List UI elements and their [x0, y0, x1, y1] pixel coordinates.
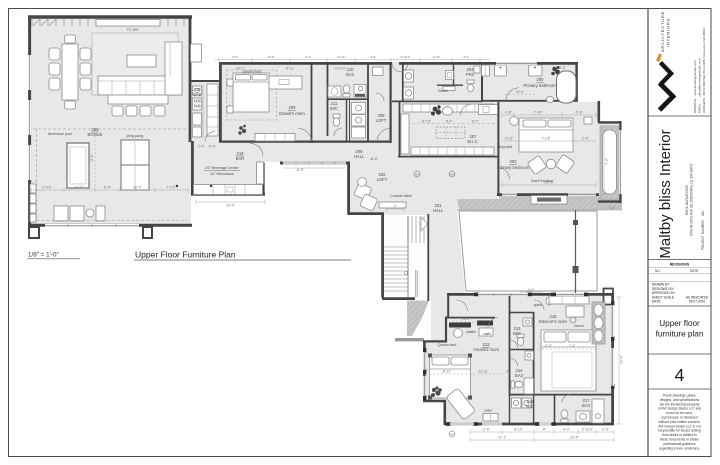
svg-text:Maltby bliss Interior: Maltby bliss Interior — [657, 129, 674, 258]
svg-text:PROJECT NUMBER: 019: PROJECT NUMBER: 019 — [701, 211, 705, 250]
svg-text:-5'-2": -5'-2" — [208, 145, 216, 149]
svg-text:209: 209 — [289, 105, 297, 110]
svg-text:ADDRESS: 400 E Mill Plain Blv: ADDRESS: 400 E Mill Plain Blvd #305, Van… — [702, 27, 706, 113]
svg-text:HALL: HALL — [354, 154, 365, 159]
svg-text:16'-5": 16'-5" — [267, 55, 274, 59]
svg-text:-12'-6": -12'-6" — [544, 181, 554, 185]
svg-text:Queen bed: Queen bed — [438, 343, 457, 347]
svg-text:bench: bench — [574, 324, 583, 328]
svg-text:-5'-0": -5'-0" — [462, 317, 470, 321]
svg-text:-17'-1": -17'-1" — [497, 436, 507, 440]
svg-text:without prior written consent.: without prior written consent. — [659, 420, 701, 424]
svg-text:easel: easel — [484, 409, 492, 413]
svg-text:-8'-0": -8'-0" — [296, 168, 304, 172]
svg-text:7'-2.5": 7'-2.5" — [541, 137, 551, 141]
svg-text:palette: palette — [466, 330, 476, 334]
svg-text:-2': -2' — [505, 370, 509, 374]
svg-text:05.07.2024: 05.07.2024 — [689, 300, 705, 304]
svg-text:DATE:: DATE: — [690, 269, 699, 273]
svg-text:these documents or obtain: these documents or obtain — [660, 438, 699, 442]
svg-text:-6'-10.5": -6'-10.5" — [400, 55, 410, 59]
svg-text:BA4: BA4 — [582, 403, 591, 408]
svg-text:NO.: NO. — [655, 269, 661, 273]
svg-text:These drawings, plans,: These drawings, plans, — [663, 394, 697, 398]
svg-text:regarding errors, omissions,: regarding errors, omissions, — [659, 446, 700, 450]
svg-text:-10'-0.5": -10'-0.5" — [334, 67, 347, 71]
svg-text:-1'-8": -1'-8" — [504, 111, 512, 115]
svg-text:Amara's room: Amara's room — [473, 347, 499, 352]
svg-text:of AVI Design Studio LLC and: of AVI Design Studio LLC and — [658, 407, 702, 411]
svg-text:-2'-10.5": -2'-10.5" — [581, 428, 594, 432]
svg-text:A/1: A/1 — [450, 432, 454, 436]
svg-text:4: 4 — [675, 365, 685, 385]
svg-text:24" Beverage Center: 24" Beverage Center — [205, 166, 239, 170]
svg-text:5'-4.5": 5'-4.5" — [42, 186, 52, 190]
svg-text:Queen bed: Queen bed — [243, 70, 262, 74]
svg-text:4': 4' — [394, 205, 397, 209]
svg-text:LOFT: LOFT — [376, 118, 387, 123]
svg-text:Console table: Console table — [390, 194, 412, 198]
svg-text:-3': -3' — [573, 287, 577, 291]
svg-text:7'-6": 7'-6" — [609, 206, 616, 210]
svg-text:-8'-0": -8'-0" — [232, 55, 239, 59]
svg-text:WEBSITE: www.levdesignstudio: WEBSITE: www.levdesignstudio.com — [693, 60, 697, 113]
svg-text:A/1: A/1 — [450, 172, 454, 176]
svg-text:11'-2": 11'-2" — [75, 186, 84, 190]
svg-text:-12'-4": -12'-4" — [569, 436, 579, 440]
svg-text:BAR: BAR — [236, 156, 245, 161]
svg-text:AVI Design Studio LLC is not: AVI Design Studio LLC is not — [658, 424, 700, 428]
svg-text:-3'-0": -3'-0" — [544, 344, 552, 348]
svg-text:8'-11": 8'-11" — [443, 370, 452, 374]
svg-text:Daniel's room: Daniel's room — [279, 111, 305, 116]
svg-text:Eleonor's room: Eleonor's room — [539, 319, 568, 324]
svg-text:professional guidance: professional guidance — [663, 442, 695, 446]
svg-text:-10'-7": -10'-7" — [235, 67, 245, 71]
svg-text:200: 200 — [537, 77, 545, 82]
svg-text:are the intellectual proper: are the intellectual property — [660, 402, 700, 406]
svg-text:furniture plan: furniture plan — [656, 330, 704, 339]
svg-text:BA2: BA2 — [346, 72, 355, 77]
svg-text:-16'-0": -16'-0" — [132, 186, 142, 190]
svg-text:Upper Floor Furniture Plan: Upper Floor Furniture Plan — [135, 250, 236, 260]
svg-text:REVISIONS: REVISIONS — [670, 263, 690, 267]
svg-text:TV 100": TV 100" — [127, 28, 140, 32]
svg-text:crafts: crafts — [483, 332, 491, 336]
svg-text:Wash: Wash — [438, 89, 448, 93]
svg-text:-9'-6": -9'-6" — [90, 153, 94, 161]
svg-text:3700 48 10TH AVE SE, WOODINVIL: 3700 48 10TH AVE SE, WOODINVILLE, WA 980… — [690, 164, 694, 237]
svg-text:-5'-6": -5'-6" — [575, 111, 583, 115]
svg-text:Upper floor: Upper floor — [659, 319, 700, 328]
svg-text:5'-4": 5'-4" — [446, 119, 453, 123]
svg-text:203: 203 — [510, 159, 518, 164]
svg-text:-2'-6": -2'-6" — [482, 428, 490, 432]
svg-text:-4'-7.5": -4'-7.5" — [421, 119, 432, 123]
svg-text:ARCHITECTURE: ARCHITECTURE — [661, 11, 665, 52]
svg-text:EMAIL: office@levdesigns: EMAIL: office@levdesignstudio.com — [698, 58, 702, 113]
svg-text:7'-7.5": 7'-7.5" — [166, 186, 176, 190]
svg-text:RAHIL BARADYKOV: RAHIL BARADYKOV — [685, 184, 689, 215]
svg-text:-6'-1": -6'-1" — [305, 55, 312, 59]
svg-text:7'-10": 7'-10" — [534, 111, 543, 115]
svg-text:reproduced, or disclosed: reproduced, or disclosed — [661, 416, 697, 420]
svg-text:ping pong: ping pong — [127, 134, 144, 138]
svg-text:GAS: GAS — [193, 92, 202, 97]
svg-text:24" Microwave: 24" Microwave — [210, 172, 233, 176]
svg-text:A/1: A/1 — [415, 172, 419, 176]
svg-text:-2'-6": -2'-6" — [601, 428, 609, 432]
svg-text:W/C: W/C — [526, 404, 534, 409]
svg-text:DATE:: DATE: — [652, 300, 661, 304]
svg-text:10'-6": 10'-6" — [516, 90, 525, 94]
svg-text:designs, and specifications: designs, and specifications — [660, 398, 700, 402]
svg-text:-2'-0": -2'-0" — [581, 137, 589, 141]
svg-text:Primary bathroom: Primary bathroom — [523, 83, 557, 88]
svg-text:-6'-11": -6'-11" — [285, 67, 295, 71]
svg-text:-10'-0": -10'-0" — [225, 204, 235, 208]
svg-text:1/8" = 1'-0": 1/8" = 1'-0" — [28, 252, 59, 259]
svg-text:-2'-6": -2'-6" — [370, 55, 377, 59]
svg-text:American pool: American pool — [48, 132, 72, 136]
svg-text:INTERIORS: INTERIORS — [666, 18, 670, 47]
svg-text:guitar: guitar — [534, 303, 543, 307]
svg-text:responsible for issues arising: responsible for issues arising — [658, 429, 701, 433]
svg-text:2'-0": 2'-0" — [528, 288, 535, 292]
svg-text:7'-4": 7'-4" — [569, 344, 576, 348]
svg-text:W/C: W/C — [330, 106, 338, 111]
svg-text:-13'-2": -13'-2" — [620, 354, 624, 364]
svg-text:-10'-11": -10'-11" — [336, 55, 345, 59]
svg-text:must not be used,: must not be used, — [666, 411, 692, 415]
svg-text:-3'-0": -3'-0" — [558, 66, 566, 70]
svg-text:Primary bedroom: Primary bedroom — [497, 165, 530, 170]
svg-text:HALL: HALL — [433, 208, 444, 213]
svg-text:BA3: BA3 — [515, 373, 524, 378]
svg-text:-12'-11": -12'-11" — [477, 370, 489, 374]
svg-text:W/C: W/C — [513, 331, 521, 336]
svg-text:-6'-4": -6'-4" — [463, 55, 470, 59]
svg-text:-7'-2": -7'-2" — [605, 157, 609, 165]
svg-text:-0'-11": -0'-11" — [504, 137, 514, 141]
svg-text:W.I.C.: W.I.C. — [467, 139, 478, 144]
svg-text:-4'-0": -4'-0" — [562, 428, 570, 432]
svg-text:-2'-10": -2'-10" — [432, 55, 440, 59]
svg-text:LOFT: LOFT — [377, 177, 388, 182]
svg-text:2'-4": 2'-4" — [198, 145, 205, 149]
svg-text:-8'-0": -8'-0" — [370, 157, 379, 161]
svg-text:-6'-7": -6'-7" — [471, 119, 479, 123]
svg-text:-8'-4": -8'-4" — [103, 186, 111, 190]
svg-text:King bed: King bed — [497, 145, 512, 149]
svg-text:PR1: PR1 — [466, 72, 475, 77]
svg-text:-6'-10": -6'-10" — [513, 428, 523, 432]
svg-text:from failure to adhere to: from failure to adhere to — [662, 433, 697, 437]
